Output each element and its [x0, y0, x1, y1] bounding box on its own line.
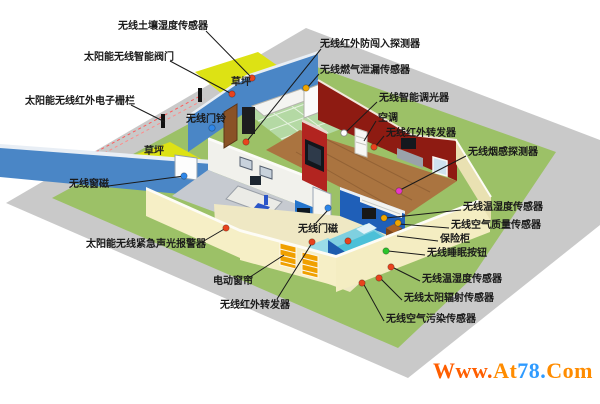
- temp-humidity-sensor-outdoor-dot: [388, 264, 394, 270]
- smart-dimmer-line: [345, 102, 377, 133]
- watermark-segment-1: At: [493, 358, 517, 383]
- ir-transponder-living-dot: [371, 144, 377, 150]
- emergency-sound-light-alarm-dot: [223, 225, 229, 231]
- safe-box-line: [397, 236, 438, 241]
- gas-leak-sensor-dot: [303, 85, 309, 91]
- ir-intrusion-detector-dot: [243, 139, 249, 145]
- annotation-layer: [0, 0, 600, 404]
- smoke-detector-dot: [396, 188, 402, 194]
- electric-curtain-line: [247, 255, 284, 279]
- sleep-button-line: [388, 251, 425, 255]
- window-magnet-dot: [181, 173, 187, 179]
- ir-intrusion-detector-line: [247, 49, 321, 141]
- soil-moisture-sensor-dot: [249, 75, 255, 81]
- air-conditioner-line: [364, 121, 376, 141]
- ir-transponder-front-line: [277, 243, 312, 299]
- air-quality-sensor-dot: [395, 220, 401, 226]
- transponder-dot-roof: [345, 238, 351, 244]
- door-magnet-line: [316, 210, 328, 223]
- sleep-button-dot: [383, 248, 389, 254]
- ir-transponder-front-dot: [309, 239, 315, 245]
- soil-moisture-sensor-line: [206, 31, 252, 78]
- window-magnet-line: [108, 176, 184, 186]
- smart-dimmer-dot: [341, 130, 347, 136]
- watermark-segment-2: 78.: [517, 358, 546, 383]
- solar-radiation-sensor-line: [380, 278, 402, 300]
- solar-radiation-sensor-dot: [376, 275, 382, 281]
- watermark-text: Www.At78.Com: [433, 358, 593, 384]
- doorbell-dot: [209, 125, 215, 131]
- emergency-sound-light-alarm-line: [197, 228, 226, 245]
- air-pollution-sensor-line: [363, 283, 384, 321]
- smart-home-wireless-sensor-diagram: 无线土壤湿度传感器太阳能无线智能阀门太阳能无线红外电子栅栏无线门铃无线窗磁太阳能…: [0, 0, 600, 404]
- watermark-segment-3: Com: [546, 358, 593, 383]
- temp-humidity-sensor-bedroom-dot: [381, 215, 387, 221]
- smoke-detector-line: [400, 156, 466, 190]
- temp-humidity-sensor-bedroom-line: [386, 210, 461, 218]
- door-magnet-dot: [325, 205, 331, 211]
- watermark-segment-0: Www.: [433, 358, 493, 383]
- electronic-fence-line: [131, 105, 165, 122]
- smart-valve-line: [170, 61, 232, 94]
- smart-valve-dot: [229, 91, 235, 97]
- air-quality-sensor-line: [399, 224, 449, 228]
- temp-humidity-sensor-outdoor-line: [392, 267, 420, 281]
- air-pollution-sensor-dot: [359, 280, 365, 286]
